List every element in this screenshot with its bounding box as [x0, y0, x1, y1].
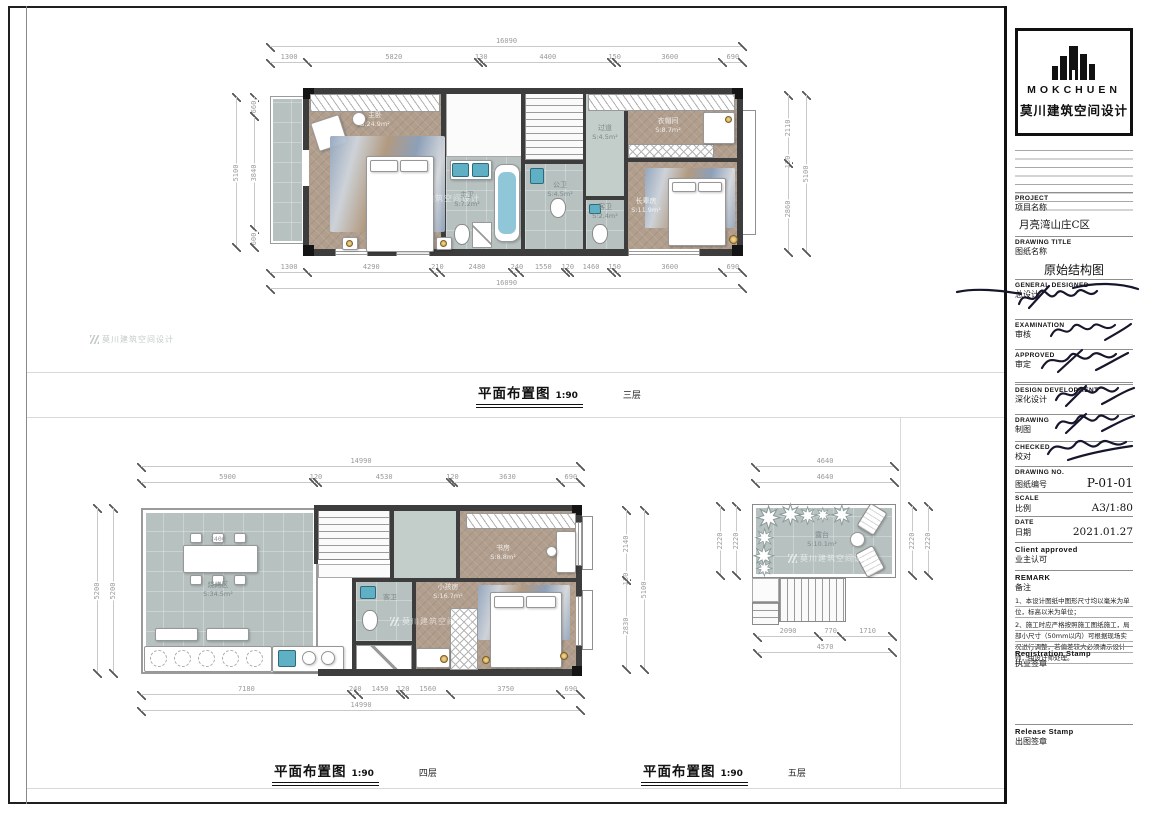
plant	[174, 650, 191, 667]
pillow	[400, 160, 428, 172]
chair	[234, 533, 246, 543]
field-project: PROJECT 项目名称 月亮湾山庄C区	[1015, 192, 1133, 234]
watermark-logo-icon	[390, 617, 399, 626]
pillow	[672, 182, 696, 192]
wall	[624, 91, 628, 251]
wall	[314, 505, 318, 564]
field-drawing: DRAWING 制图	[1015, 414, 1133, 441]
bay-window-study	[582, 516, 593, 570]
watermark-logo-icon	[788, 554, 797, 563]
plant	[246, 650, 263, 667]
bench	[206, 628, 249, 641]
closet-cabinet-hatch	[628, 144, 714, 158]
bench	[155, 628, 198, 641]
dim-3f-bottom: 130042902102480240155012014601503600690	[270, 262, 743, 273]
wall	[456, 505, 460, 582]
balcony-3f	[270, 96, 305, 244]
stair-steps-5f	[752, 602, 779, 625]
chair	[234, 575, 246, 585]
window	[335, 249, 368, 256]
dim-4f-top: 590012045301203630690	[141, 472, 581, 483]
remark-note-1: 1、本设计图纸中图形尺寸均以毫米为单位，标高以米为单位；	[1015, 596, 1133, 618]
shower	[472, 222, 492, 248]
bay-window-kids	[582, 590, 593, 650]
table-dim-label: 2400	[210, 535, 226, 543]
field-examination: EXAMINATION 审核	[1015, 319, 1133, 349]
sink	[452, 163, 469, 177]
stair-landing-5f	[752, 578, 779, 602]
room-label-kids: 小孩房S:16.7m²	[433, 583, 463, 601]
column	[732, 245, 743, 256]
plan-title-5f: 平面布置图1:90 五层	[641, 760, 806, 786]
desk-study	[556, 531, 576, 573]
company-logo: MOKCHUEN 莫川建筑空间设计	[1015, 28, 1133, 136]
sink	[278, 650, 296, 667]
toilet	[454, 224, 470, 245]
dim-5f-left-total: 2220	[714, 506, 726, 576]
watermark-logo-icon	[90, 335, 99, 344]
field-checked: CHECKED 校对	[1015, 441, 1133, 466]
dim-5f-bottom: 20907701710	[757, 626, 893, 637]
panel-divider-h2	[27, 417, 1004, 418]
watermark: 莫川建筑空间设计	[390, 616, 474, 627]
stair-landing-4f	[318, 564, 394, 578]
wall	[352, 582, 356, 676]
dim-4f-right-total: 5100	[638, 510, 650, 670]
dim-5f-left: 2220	[730, 506, 742, 576]
dining-table	[183, 545, 258, 573]
panel-divider-v	[900, 417, 901, 788]
dim-3f-bottom-total: 16090	[270, 278, 743, 289]
room-label-bath-4f: 客卫	[383, 593, 397, 602]
dim-3f-right-total: 5100	[800, 95, 812, 253]
staircase-3f	[525, 90, 585, 160]
wall	[314, 505, 582, 511]
binding-margin-line	[26, 6, 27, 804]
wall	[521, 160, 586, 164]
field-approved: APPROVED 审定	[1015, 349, 1133, 382]
window	[576, 596, 582, 646]
stair-landing-3f	[446, 91, 522, 157]
dim-5f-right: 2220	[906, 506, 918, 576]
wall	[586, 196, 624, 200]
field-client-approved: Client approved 业主认可	[1015, 542, 1133, 570]
pillow	[526, 596, 556, 608]
room-label-guest-bath: 客卫S:2.4m²	[592, 203, 618, 221]
room-label-study: 书房S:8.8m²	[490, 544, 516, 562]
field-general-designed: GENERAL DESIGNED 总设计	[1015, 279, 1133, 319]
plant	[150, 650, 167, 667]
toilet	[550, 198, 566, 218]
window	[628, 249, 700, 256]
dim-4f-top-total: 14990	[141, 456, 581, 467]
field-drawing-title: DRAWING TITLE 图纸名称 原始结构图	[1015, 236, 1133, 280]
watermark-logo-icon	[396, 194, 405, 203]
dim-4f-left-total: 5200	[91, 508, 103, 674]
dim-3f-top: 1300582013044001503600690	[270, 52, 743, 63]
drawing-sheet: 16090 1300582013044001503600690 13004290…	[0, 0, 1150, 814]
chair	[190, 533, 202, 543]
wall	[628, 158, 738, 162]
buildings-icon	[1052, 46, 1096, 80]
room-label-corridor: 过道S:4.5m²	[592, 124, 618, 142]
hall-4f-floor	[394, 511, 458, 580]
field-release-stamp: Release Stamp 出图签章	[1015, 724, 1133, 799]
pillow	[494, 596, 524, 608]
wardrobe-hatch	[310, 94, 440, 112]
lamp	[440, 240, 447, 247]
field-drawing-no: DRAWING NO. 图纸编号P-01-01	[1015, 466, 1133, 490]
dim-3f-top-total: 16090	[270, 36, 743, 47]
plan-title-3f: 平面布置图1:90 三层	[476, 382, 641, 408]
chair	[546, 546, 557, 557]
round-table	[850, 532, 865, 547]
dim-4f-bottom-total: 14990	[141, 700, 581, 711]
staircase-5f	[779, 578, 846, 622]
dim-3f-right: 21101302860	[782, 95, 794, 253]
dim-5f-bottom-total: 4570	[757, 642, 893, 653]
plant	[198, 650, 215, 667]
dim-5f-top: 4640	[755, 472, 895, 483]
pillow	[370, 160, 398, 172]
wall	[390, 505, 394, 582]
brand-name-cn: 莫川建筑空间设计	[1020, 100, 1128, 119]
toilet	[362, 610, 378, 631]
watermark: 莫川建筑空间设计	[788, 553, 872, 564]
field-registration-stamp: Registration Stamp 执业签章	[1015, 646, 1133, 724]
chair	[190, 575, 202, 585]
wall	[318, 669, 582, 676]
room-label-terrace: 露台S:10.1m²	[807, 531, 837, 549]
wardrobe-hatch	[466, 513, 576, 529]
watermark: 莫川建筑空间设计	[90, 334, 174, 345]
window	[576, 522, 582, 566]
lamp	[440, 655, 448, 663]
column	[303, 245, 314, 256]
room-label-public-bath: 公卫S:4.5m²	[547, 181, 573, 199]
burner	[302, 651, 316, 665]
lamp	[560, 652, 568, 660]
sink	[530, 168, 544, 184]
room-label-master-bedroom: 主卧S:24.9m²	[360, 111, 390, 129]
room-label-elder-room: 长辈房S:11.9m²	[631, 197, 661, 215]
pillow	[698, 182, 722, 192]
toilet	[592, 224, 608, 244]
lamp	[725, 116, 732, 123]
bathtub-water	[498, 172, 516, 234]
panel-divider-h3	[27, 788, 1004, 789]
plant	[222, 650, 239, 667]
sink	[360, 586, 376, 599]
room-label-bbq: 烧烤区S:34.5m²	[203, 581, 233, 599]
dim-4f-bottom: 7180240145012015603750690	[141, 684, 581, 695]
field-scale: SCALE 比例A3/1:80	[1015, 492, 1133, 514]
staircase-4f	[318, 509, 390, 560]
wall	[352, 641, 412, 645]
column	[572, 666, 582, 676]
dim-3f-left: 6603840600	[248, 97, 260, 248]
title-block: MOKCHUEN 莫川建筑空间设计 PROJECT 项目名称 月亮湾山庄C区 D…	[1004, 6, 1140, 804]
lamp	[346, 240, 353, 247]
wall	[521, 91, 525, 251]
wall	[352, 578, 582, 582]
field-date: DATE 日期2021.01.27	[1015, 516, 1133, 538]
dim-3f-left-total: 5100	[230, 97, 242, 248]
wardrobe-hatch	[588, 94, 735, 111]
watermark: 莫川建筑空间设计	[396, 193, 480, 204]
dim-4f-right: 21401302830	[620, 510, 632, 670]
room-label-closet: 衣帽间S:8.7m²	[655, 117, 681, 135]
bay-window-3f	[741, 110, 756, 235]
balcony-door-opening	[303, 150, 309, 186]
burner	[321, 651, 335, 665]
wall	[583, 91, 586, 251]
dim-4f-left: 5200	[107, 508, 119, 674]
shower-4f	[356, 645, 412, 670]
brand-name: MOKCHUEN	[1027, 84, 1121, 96]
wall	[737, 88, 743, 256]
lamp	[482, 656, 490, 664]
lamp	[729, 235, 738, 244]
dim-5f-right-total: 2220	[922, 506, 934, 576]
field-design-development: DESIGN DEVELOPMENT 深化设计	[1015, 382, 1133, 414]
panel-divider-h1	[27, 372, 1004, 373]
sink	[472, 163, 489, 177]
plan-title-4f: 平面布置图1:90 四层	[272, 760, 437, 786]
dim-5f-top-total: 4640	[755, 456, 895, 467]
